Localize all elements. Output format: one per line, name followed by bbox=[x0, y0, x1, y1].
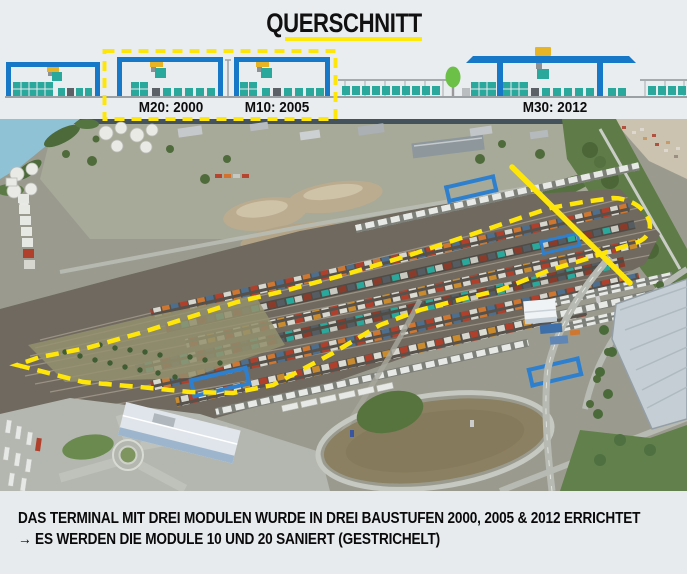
crane-trolley-icon bbox=[47, 67, 59, 72]
crane-trolley-icon bbox=[150, 62, 163, 67]
page-title: QUERSCHNITT bbox=[266, 8, 421, 39]
module-label-m30: M30: 2012 bbox=[523, 99, 588, 116]
aerial-photo bbox=[0, 119, 687, 491]
tree-icon bbox=[446, 67, 461, 97]
light-mast-icon bbox=[225, 60, 231, 96]
slide: QUERSCHNITT bbox=[0, 0, 687, 574]
module-30-graphic bbox=[466, 47, 636, 96]
module-20-graphic bbox=[117, 57, 223, 96]
caption-line-2: → ES WERDEN DIE MODULE 10 UND 20 SANIERT… bbox=[18, 531, 440, 549]
crane-trolley-icon bbox=[256, 62, 269, 67]
truck-lane-rack-graphic bbox=[338, 80, 447, 96]
module-10-graphic bbox=[234, 57, 330, 96]
crane-trolley-icon bbox=[535, 47, 551, 56]
title-underline bbox=[285, 37, 422, 41]
caption-line-1: DAS TERMINAL MIT DREI MODULEN WURDE IN D… bbox=[18, 510, 640, 528]
module-label-m10: M10: 2005 bbox=[245, 99, 310, 116]
tent-building bbox=[523, 299, 557, 325]
truck-lane-rack-right-graphic bbox=[640, 80, 687, 96]
module-label-m20: M20: 2000 bbox=[139, 99, 204, 116]
module-left-partial-graphic bbox=[6, 62, 100, 96]
